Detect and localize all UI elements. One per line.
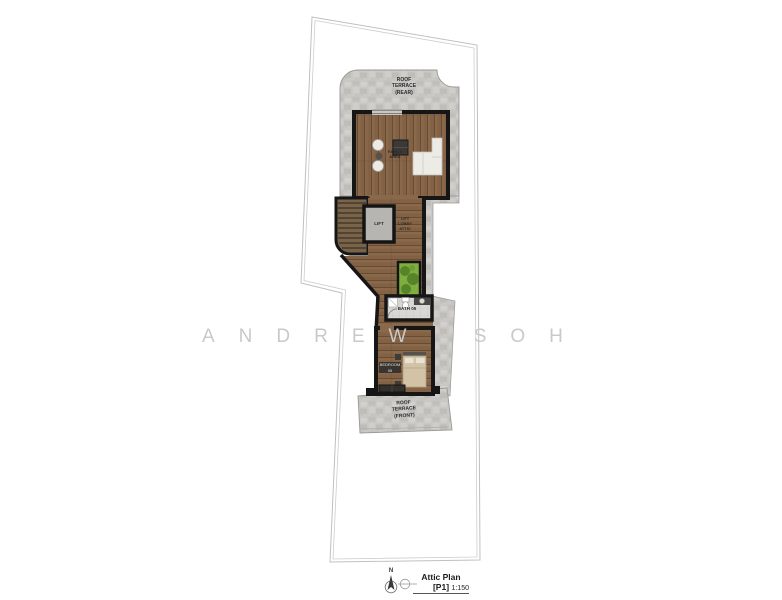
basin <box>419 298 424 303</box>
lift-shaft <box>364 206 394 242</box>
round-chair <box>373 140 384 151</box>
toilet <box>403 302 409 310</box>
watermark-text: ANDREW SOH <box>202 326 587 348</box>
round-chair <box>373 161 384 172</box>
toilet-cistern <box>402 298 409 303</box>
floor-plan-sheet: ANDREW SOH ROOF TERRACE (REAR) FAMILY AR… <box>0 0 782 600</box>
pillow <box>405 358 415 364</box>
pillow <box>416 358 426 364</box>
scale-datum-icon <box>398 579 417 589</box>
family-area-room <box>354 110 448 198</box>
bedside-table <box>395 354 401 360</box>
bathroom <box>386 296 432 320</box>
planter-box <box>398 262 420 297</box>
headboard <box>403 352 426 356</box>
side-table <box>376 153 383 160</box>
wall-stub-left <box>366 388 374 396</box>
roof-edge-strip-upper <box>424 196 459 300</box>
attic-floor-plan-drawing <box>0 0 782 600</box>
north-arrow-icon <box>385 575 397 593</box>
